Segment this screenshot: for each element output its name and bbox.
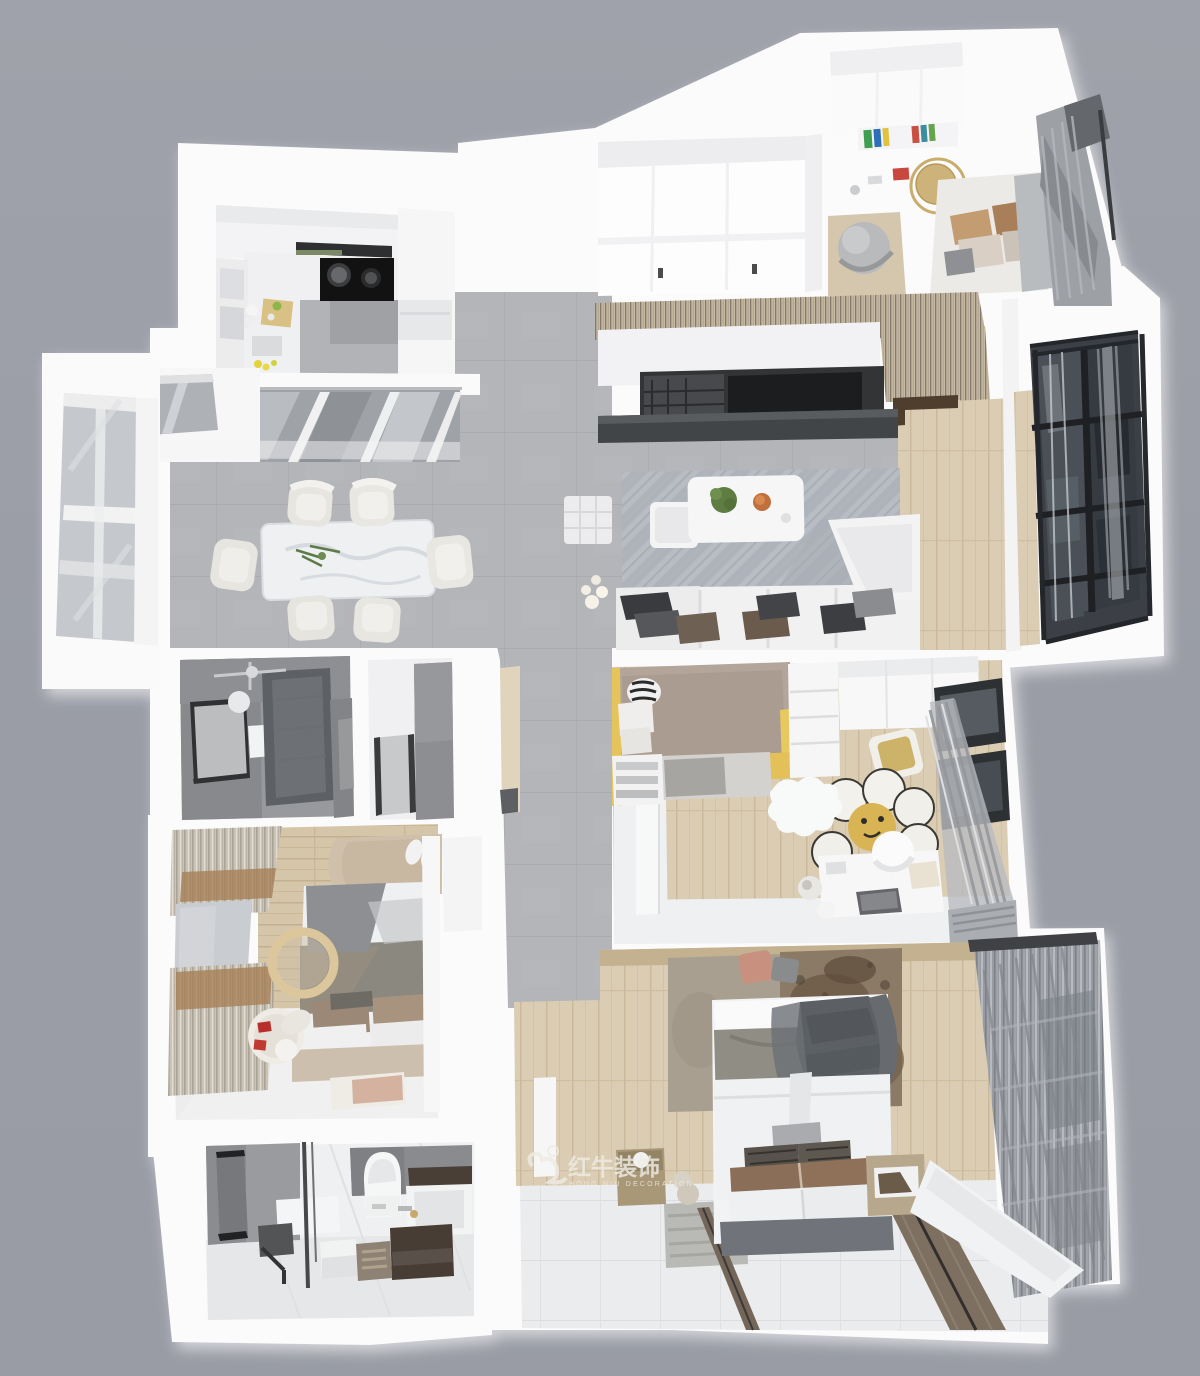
svg-text:HONG NIU DECORATION: HONG NIU DECORATION <box>569 1181 694 1188</box>
svg-text:红牛装饰: 红牛装饰 <box>568 1154 660 1180</box>
